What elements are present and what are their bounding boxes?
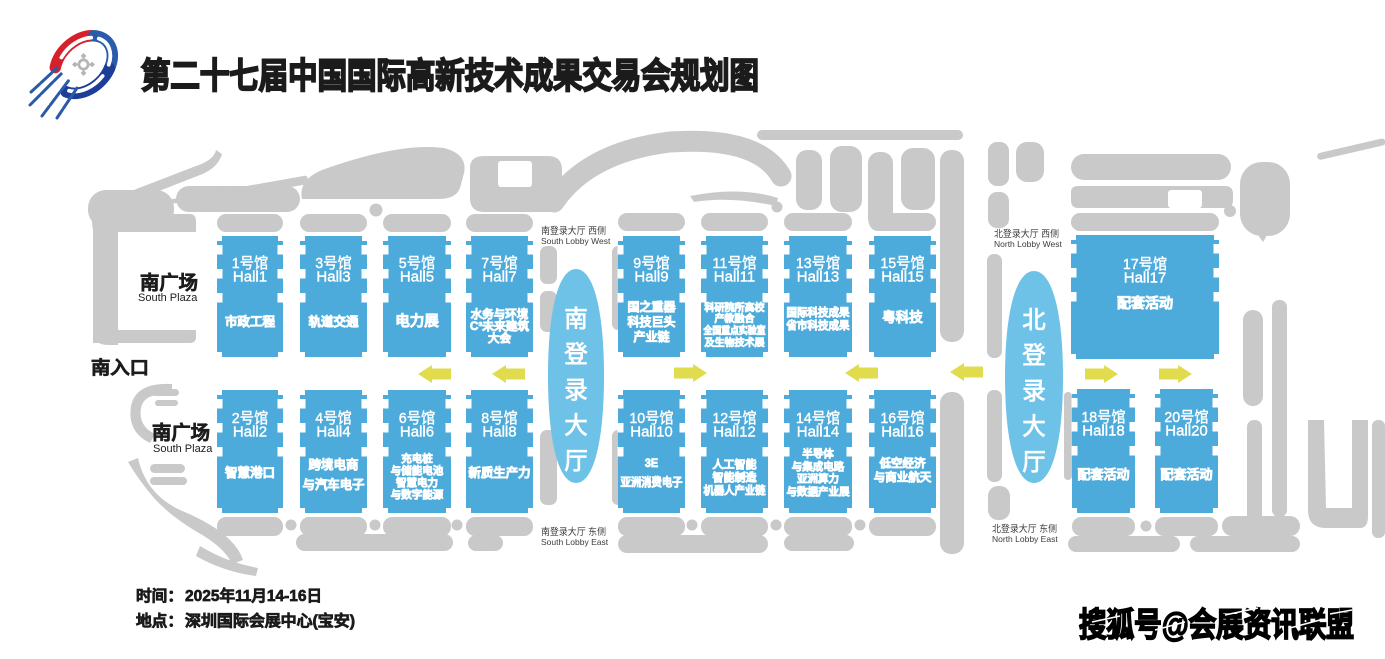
svg-text:第二十七届中国国际高新技术成果交易会规划图: 第二十七届中国国际高新技术成果交易会规划图 [141,56,759,96]
svg-text:智慧电力: 智慧电力 [395,476,438,489]
svg-text:电力展: 电力展 [395,312,439,330]
svg-text:半导体: 半导体 [802,447,834,460]
svg-text:南: 南 [564,306,588,333]
svg-text:Hall13: Hall13 [797,269,840,286]
svg-text:配套活动: 配套活动 [1078,467,1130,482]
svg-text:亚洲消费电子: 亚洲消费电子 [621,475,683,489]
svg-text:与集成电路: 与集成电路 [792,460,845,473]
svg-text:轨道交通: 轨道交通 [309,314,359,329]
svg-text:Hall20: Hall20 [1165,423,1208,440]
svg-text:智慧港口: 智慧港口 [224,465,275,480]
svg-text:地点：: 地点： [136,611,183,630]
svg-text:Hall5: Hall5 [400,269,434,286]
svg-text:Hall14: Hall14 [797,424,840,441]
svg-text:3E: 3E [645,458,659,470]
svg-text:机器人产业链: 机器人产业链 [704,483,767,497]
svg-text:South Plaza: South Plaza [153,443,213,455]
svg-text:Hall9: Hall9 [634,269,668,286]
svg-text:South Plaza: South Plaza [138,292,198,304]
svg-text:全国重点实验室: 全国重点实验室 [703,324,766,337]
svg-text:大: 大 [1022,414,1046,441]
svg-text:厅: 厅 [1022,449,1046,476]
svg-text:市政工程: 市政工程 [225,314,275,329]
svg-text:Hall8: Hall8 [482,424,516,441]
svg-text:South Lobby East: South Lobby East [541,537,609,547]
svg-text:搜狐号@会展资讯联盟: 搜狐号@会展资讯联盟 [1079,606,1354,643]
svg-text:Hall17: Hall17 [1124,270,1167,287]
svg-text:与汽车电子: 与汽车电子 [303,477,365,492]
svg-text:省市科技成果: 省市科技成果 [786,318,850,332]
svg-text:Hall4: Hall4 [316,424,350,441]
svg-text:Hall18: Hall18 [1082,423,1125,440]
svg-text:国际科技成果: 国际科技成果 [787,305,850,319]
svg-text:Hall7: Hall7 [482,269,516,286]
svg-text:与数字能源: 与数字能源 [391,488,444,501]
svg-text:时间：: 时间： [136,586,183,605]
svg-text:录: 录 [1022,378,1046,405]
svg-text:录: 录 [564,377,588,404]
svg-text:配套活动: 配套活动 [1117,295,1173,311]
svg-text:登: 登 [564,342,588,369]
svg-text:North Lobby East: North Lobby East [992,534,1058,544]
svg-text:产业链: 产业链 [634,329,671,344]
svg-text:跨境电商: 跨境电商 [309,457,359,472]
svg-text:C³未来建筑: C³未来建筑 [470,319,530,333]
svg-text:Hall6: Hall6 [400,424,434,441]
svg-text:亚洲算力: 亚洲算力 [797,472,839,485]
svg-text:深圳国际会展中心(宝安): 深圳国际会展中心(宝安) [185,611,355,630]
svg-text:科技巨头: 科技巨头 [628,314,676,329]
svg-text:与商业航天: 与商业航天 [874,470,932,484]
svg-text:Hall2: Hall2 [233,424,267,441]
svg-text:Hall3: Hall3 [316,269,350,286]
svg-text:水务与环境: 水务与环境 [471,307,529,321]
svg-text:北: 北 [1022,307,1046,334]
svg-text:智能制造: 智能制造 [713,470,758,484]
svg-text:新质生产力: 新质生产力 [469,465,531,480]
svg-text:南广场: 南广场 [152,421,210,444]
svg-text:产教融合: 产教融合 [715,312,756,325]
svg-text:Hall11: Hall11 [714,269,755,286]
svg-text:充电桩: 充电桩 [401,452,433,465]
svg-text:科研院所高校: 科研院所高校 [705,301,766,314]
svg-text:登: 登 [1022,343,1046,370]
svg-text:Hall15: Hall15 [881,269,924,286]
svg-text:与数据产业展: 与数据产业展 [787,485,850,498]
svg-text:及生物技术展: 及生物技术展 [705,336,765,349]
svg-text:人工智能: 人工智能 [713,457,757,471]
svg-text:Hall10: Hall10 [630,424,673,441]
svg-text:国之重器: 国之重器 [628,299,677,314]
svg-text:南入口: 南入口 [91,357,149,378]
svg-text:2025年11月14-16日: 2025年11月14-16日 [185,586,322,605]
svg-text:Hall1: Hall1 [233,269,267,286]
svg-text:大会: 大会 [488,331,511,345]
svg-text:North Lobby West: North Lobby West [994,239,1063,249]
svg-text:与储能电池: 与储能电池 [391,464,444,477]
svg-text:南广场: 南广场 [140,271,198,294]
svg-text:配套活动: 配套活动 [1161,467,1213,482]
svg-text:South Lobby West: South Lobby West [541,236,611,246]
svg-text:大: 大 [564,413,588,440]
svg-text:厅: 厅 [564,448,588,475]
svg-text:Hall16: Hall16 [881,424,924,441]
svg-text:Hall12: Hall12 [713,424,756,441]
svg-text:粤科技: 粤科技 [882,309,923,325]
svg-text:低空经济: 低空经济 [879,456,926,470]
